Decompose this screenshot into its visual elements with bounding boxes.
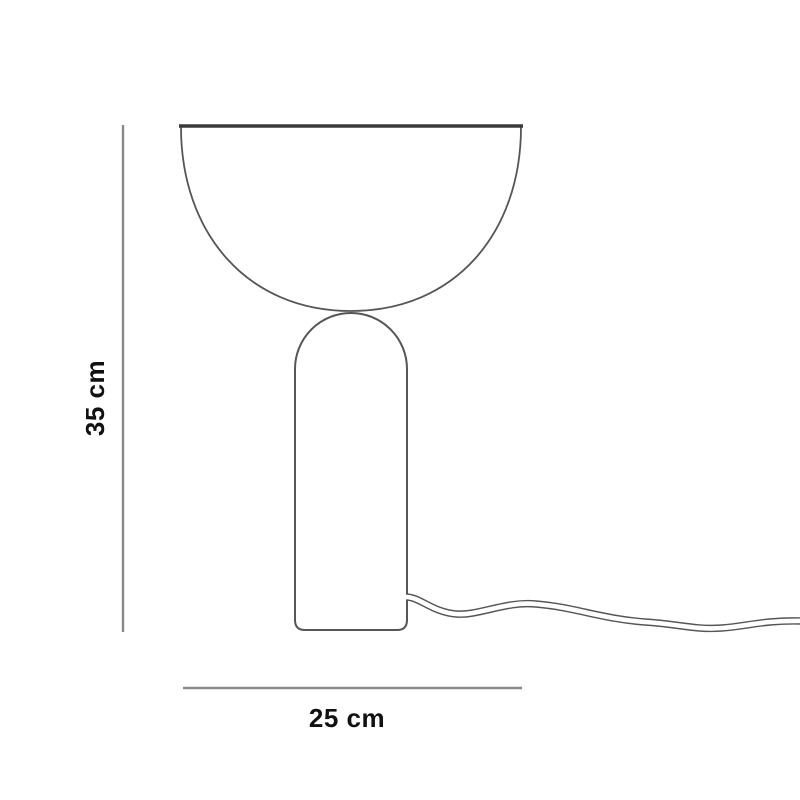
width-dimension-label: 25 cm [287, 704, 407, 732]
lamp-dimension-diagram: 35 cm 25 cm [0, 0, 800, 800]
lamp-base-outline [295, 313, 407, 630]
lamp-shade-outline [181, 127, 521, 311]
height-dimension-label: 35 cm [81, 348, 109, 448]
line-art-canvas [0, 0, 800, 800]
